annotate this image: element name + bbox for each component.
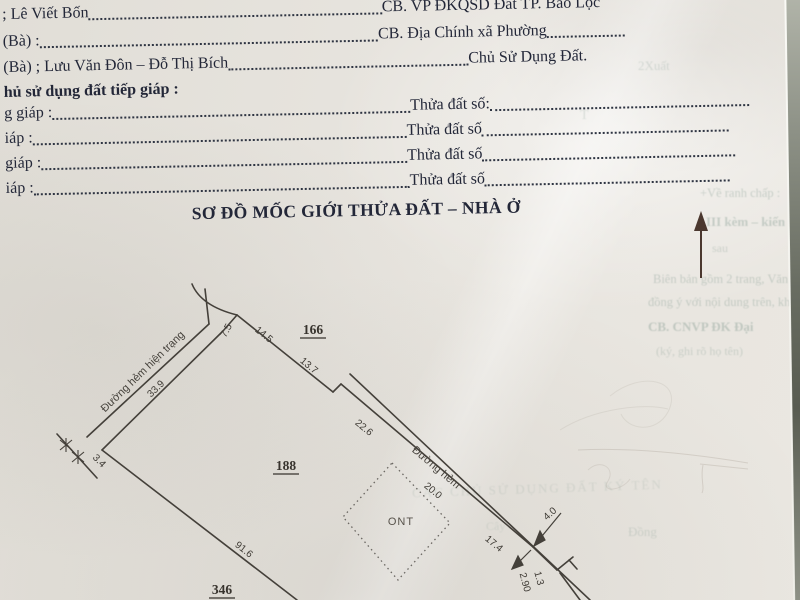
boundary-step: [333, 384, 341, 392]
road-name-existing-alley: Đường hẻm hiện trạng: [99, 329, 187, 415]
scanned-document-photo: 2Xuất T +Về ranh chấp : III kèm – kiến n…: [0, 0, 800, 600]
lane-sw-continuation: [560, 573, 580, 600]
arrowhead: [512, 556, 523, 569]
corner-cut: [533, 547, 557, 570]
dim-20-0: 20.0: [422, 481, 444, 502]
pencil-stroke: [700, 464, 748, 493]
dim-7-5: 7.5: [219, 322, 235, 340]
arrowhead: [534, 531, 545, 546]
parcel-number-188: 188: [276, 458, 297, 473]
dim-91-6: 91.6: [232, 540, 254, 561]
dim-1-3: 1.3: [531, 570, 545, 587]
land-use-label: ONT: [388, 516, 414, 528]
road-curve: [192, 284, 237, 315]
pencil-stroke: [578, 449, 748, 463]
dim-33-9: 33.9: [145, 378, 167, 400]
parcel-number-166: 166: [303, 322, 324, 337]
pencil-stroke: [610, 381, 672, 427]
dim-3-4: 3.4: [90, 452, 108, 470]
pencil-stroke: [560, 407, 668, 430]
dim-2-90: 2.90: [517, 572, 533, 594]
alley-outer-edge: [87, 324, 209, 437]
pencil-stroke: [588, 465, 630, 489]
corner-mark: [557, 557, 577, 570]
parcel-sketch: 166 188 346 ONT Đường hẻm hiện trạng Đườ…: [0, 0, 800, 600]
dim-22-6: 22.6: [353, 418, 375, 439]
road-name-alley: Đường hẻm: [409, 444, 462, 491]
boundary-91-6: [102, 450, 297, 600]
dim-17-4: 17.4: [483, 534, 505, 555]
dim-13-7: 13.7: [298, 356, 320, 377]
dim-4-0: 4.0: [541, 505, 559, 523]
parcel-number-346: 346: [212, 582, 233, 597]
north-arrow-icon: [694, 211, 708, 278]
road-edge: [205, 289, 209, 324]
